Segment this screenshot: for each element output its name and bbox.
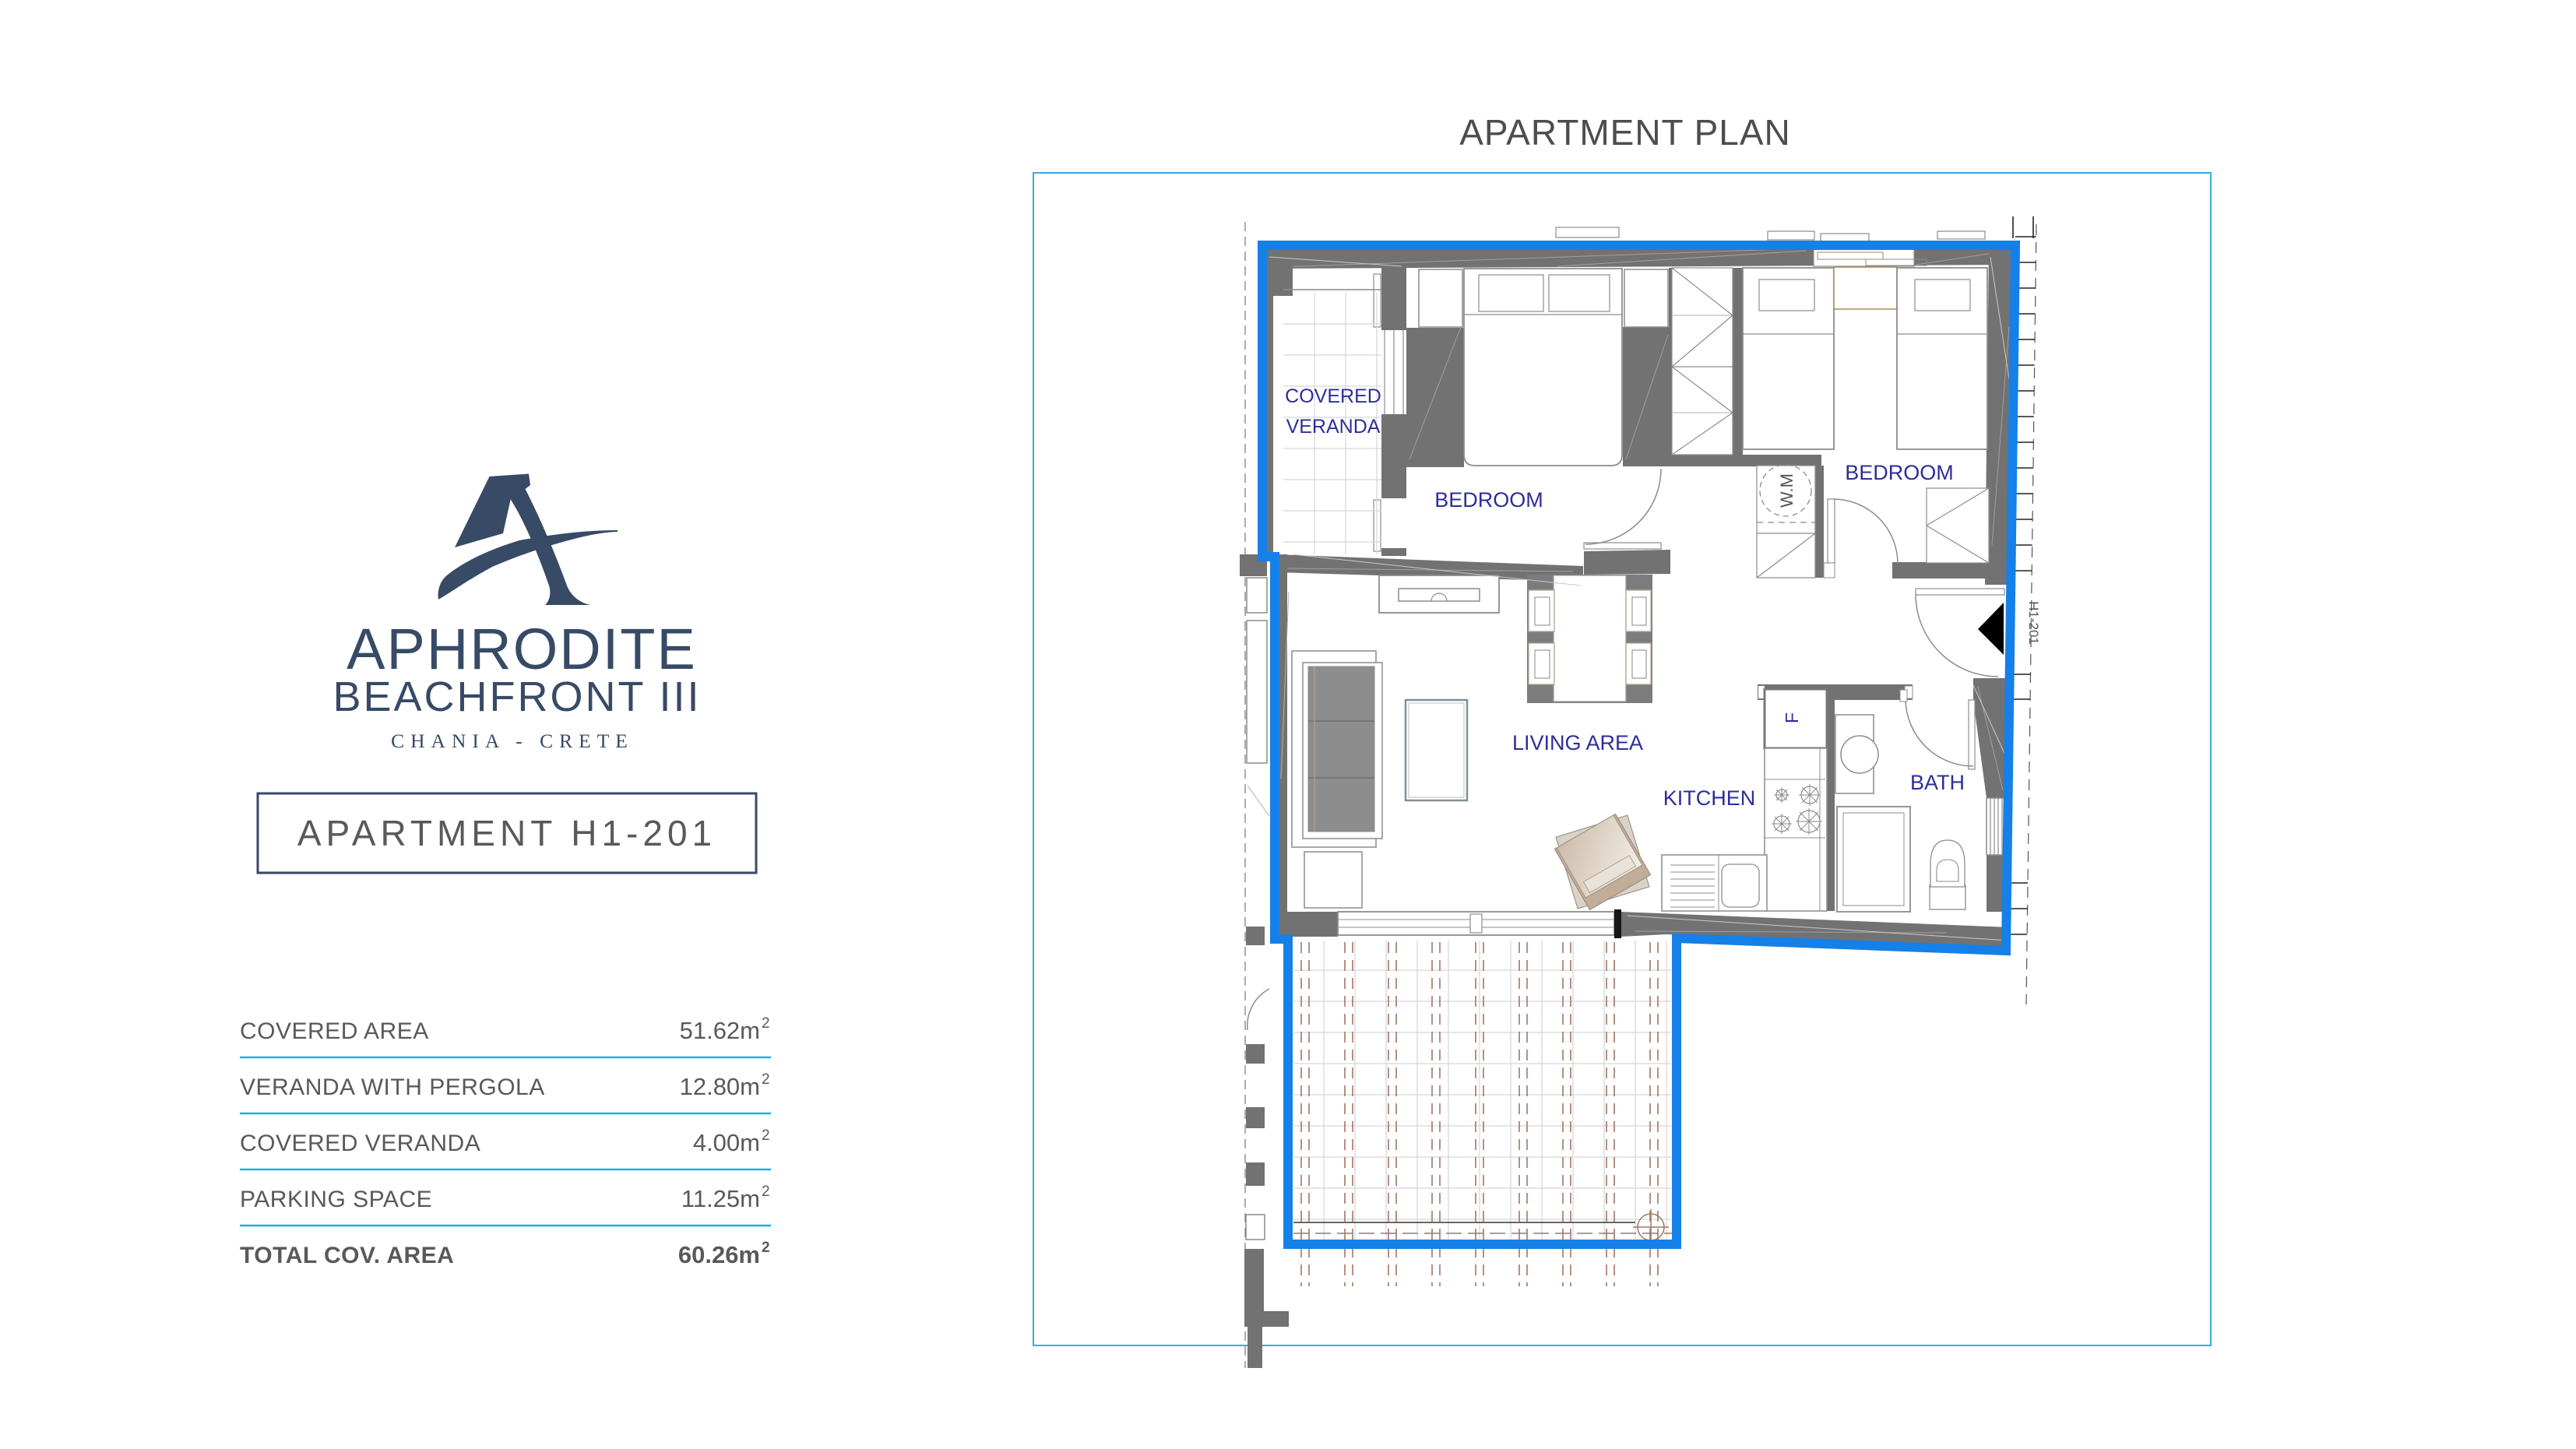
svg-text:BEDROOM: BEDROOM xyxy=(1845,461,1954,484)
svg-text:APARTMENT H1-201: APARTMENT H1-201 xyxy=(297,813,716,853)
svg-text:2: 2 xyxy=(762,1127,770,1144)
svg-text:COVERED VERANDA: COVERED VERANDA xyxy=(240,1131,480,1156)
svg-text:COVERED AREA: COVERED AREA xyxy=(240,1018,429,1044)
svg-text:BEACHFRONT III: BEACHFRONT III xyxy=(333,674,701,720)
svg-text:F: F xyxy=(1782,712,1802,723)
svg-text:APARTMENT PLAN: APARTMENT PLAN xyxy=(1459,112,1791,153)
svg-text:CHANIA - CRETE: CHANIA - CRETE xyxy=(391,730,634,752)
svg-text:60.26m: 60.26m xyxy=(678,1241,760,1268)
svg-text:PARKING SPACE: PARKING SPACE xyxy=(240,1187,432,1212)
svg-text:W.M: W.M xyxy=(1777,473,1797,508)
svg-text:2: 2 xyxy=(762,1071,770,1088)
svg-text:H1-201: H1-201 xyxy=(2026,601,2041,645)
svg-text:APHRODITE: APHRODITE xyxy=(347,617,697,681)
svg-text:COVERED: COVERED xyxy=(1285,385,1381,407)
svg-text:12.80m: 12.80m xyxy=(680,1073,760,1100)
svg-text:BATH: BATH xyxy=(1910,771,1965,794)
svg-text:KITCHEN: KITCHEN xyxy=(1663,786,1756,810)
svg-text:2: 2 xyxy=(762,1183,770,1200)
svg-text:11.25m: 11.25m xyxy=(681,1185,760,1212)
svg-text:2: 2 xyxy=(762,1015,770,1032)
svg-text:BEDROOM: BEDROOM xyxy=(1434,488,1543,512)
svg-text:4.00m: 4.00m xyxy=(693,1129,760,1156)
svg-text:VERANDA WITH PERGOLA: VERANDA WITH PERGOLA xyxy=(240,1074,545,1100)
svg-text:VERANDA: VERANDA xyxy=(1286,416,1381,438)
svg-text:TOTAL COV. AREA: TOTAL COV. AREA xyxy=(240,1243,454,1268)
svg-text:2: 2 xyxy=(762,1240,770,1256)
svg-text:LIVING AREA: LIVING AREA xyxy=(1512,731,1643,754)
svg-text:51.62m: 51.62m xyxy=(680,1017,760,1044)
